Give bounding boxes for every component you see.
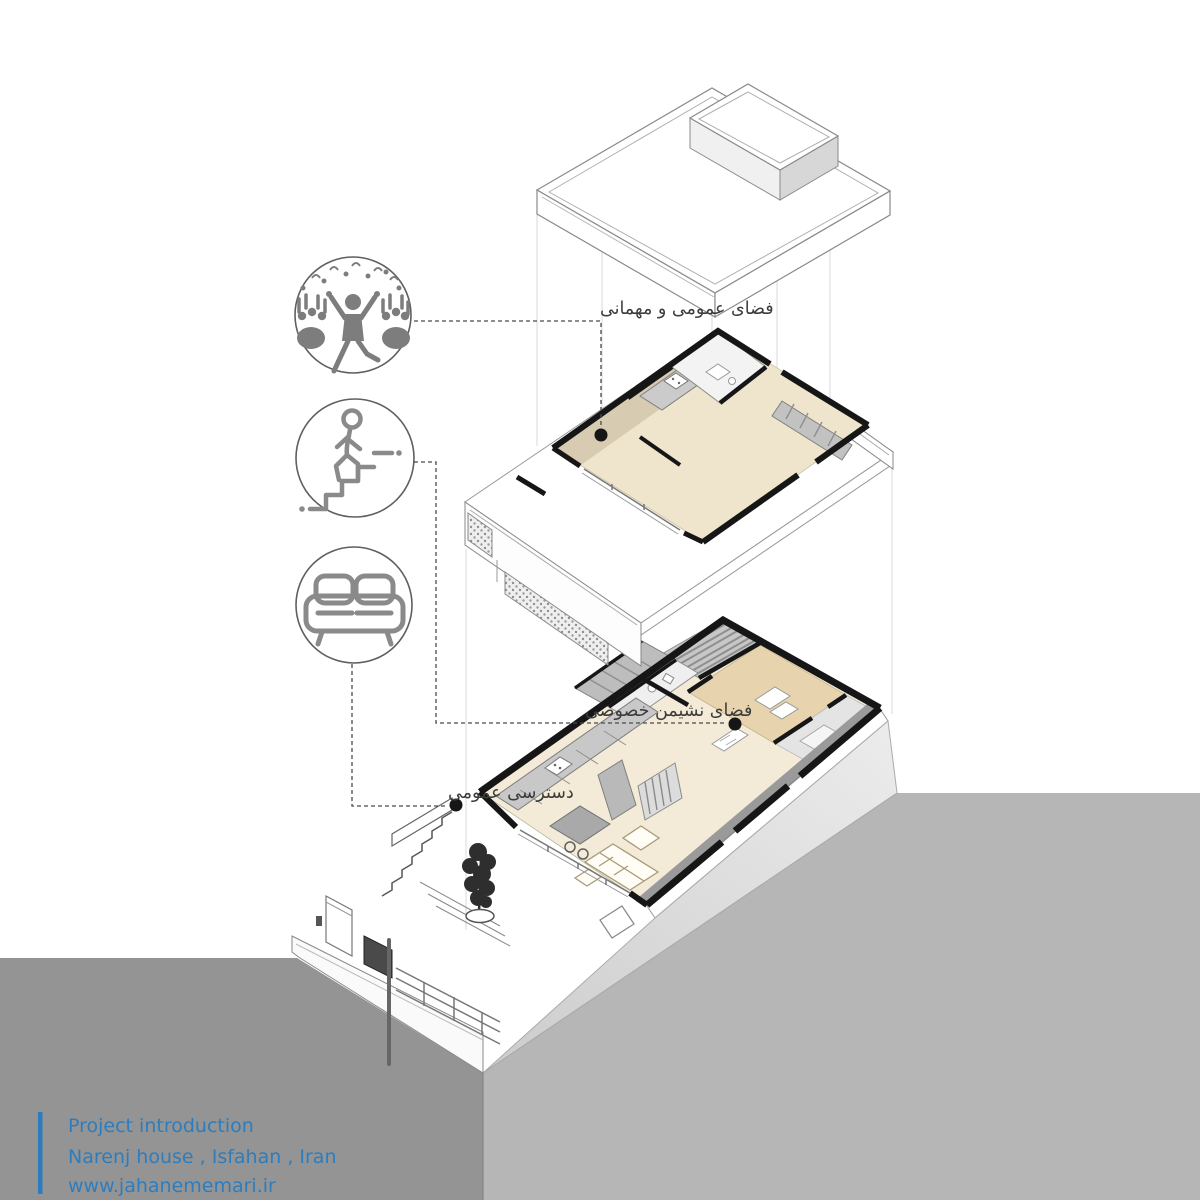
legend: [295, 257, 414, 663]
party-crowd-icon: [295, 257, 411, 373]
label-private-living-space: فضای نشیمن خصوصی: [585, 701, 752, 721]
footer-line-2: Narenj house , Isfahan , Iran: [68, 1146, 337, 1168]
intercom-box: [316, 916, 322, 926]
tree-planter: [466, 910, 494, 923]
axonometric-diagram: فضای عمومی و مهمانی فضای نشیمن خصوصی دست…: [0, 0, 1200, 1200]
person-on-stairs-icon: [296, 399, 414, 517]
label-public-access: دسترسی عمومی: [448, 783, 574, 803]
dot-public-guest: [595, 429, 608, 442]
footer-line-3: www.jahanememari.ir: [68, 1175, 276, 1197]
label-public-guest-space: فضای عمومی و مهمانی: [600, 299, 774, 319]
diagram-page: فضای عمومی و مهمانی فضای نشیمن خصوصی دست…: [0, 0, 1200, 1200]
sofa-icon: [296, 547, 412, 663]
footer-accent-bar: [38, 1112, 43, 1194]
footer-line-1: Project introduction: [68, 1115, 254, 1137]
